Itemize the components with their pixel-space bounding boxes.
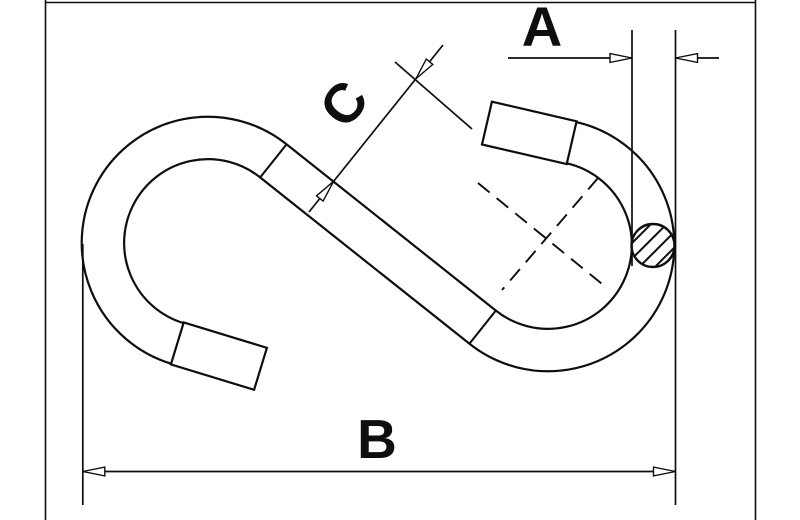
extension-line-c — [395, 62, 472, 129]
lower-end-cap — [171, 322, 267, 389]
s-hook-body — [103, 102, 653, 390]
dimension-b-label: B — [357, 408, 397, 470]
section-circle — [632, 224, 675, 267]
center-line-2 — [502, 178, 598, 290]
dimension-b: B — [83, 244, 676, 505]
arrowhead-c-upper — [416, 59, 433, 79]
arrowhead-a-left — [610, 54, 632, 63]
arrowhead-a-right — [676, 54, 698, 63]
dimension-a: A — [508, 0, 719, 505]
arrowhead-b-right — [654, 467, 676, 476]
dimension-a-label: A — [522, 0, 562, 58]
technical-drawing-page: A B C — [0, 0, 800, 520]
s-hook-technical-drawing: A B C — [0, 0, 800, 520]
dimension-c-label: C — [307, 69, 380, 139]
wire-interior — [103, 138, 653, 350]
upper-end-cap — [482, 102, 577, 164]
wire-section — [632, 224, 675, 267]
center-lines — [478, 178, 607, 290]
arrowhead-b-left — [83, 467, 105, 476]
center-line-1 — [478, 183, 607, 288]
